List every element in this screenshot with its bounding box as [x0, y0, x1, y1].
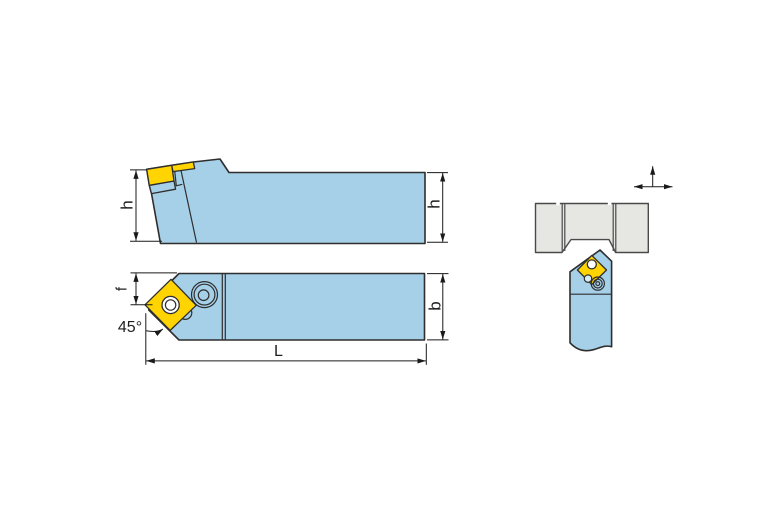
drawing-svg: [0, 0, 767, 523]
label-angle: 45°: [118, 320, 142, 336]
label-width: b: [426, 301, 443, 310]
workpiece: [536, 202, 649, 253]
workpiece-profile: [536, 204, 649, 253]
technical-drawing-canvas: h h f 45° b L: [0, 0, 767, 523]
label-height-left: h: [118, 200, 135, 209]
label-height-right: h: [425, 199, 442, 208]
side-view: [147, 159, 425, 244]
insert-side: [147, 165, 174, 185]
clamp-pin-front: [584, 275, 591, 282]
insert-hole-front: [587, 260, 596, 269]
workpiece-break-gap-left: [556, 202, 560, 206]
feed-direction-icon: [634, 166, 673, 187]
insert-hole-outer: [162, 296, 179, 313]
plan-view: [145, 274, 425, 341]
label-tip-offset: f: [114, 287, 129, 291]
angle-leader: [146, 329, 163, 331]
workpiece-break-gap-right: [608, 202, 612, 206]
holder-body-side: [147, 159, 425, 244]
label-length: L: [274, 344, 283, 360]
front-view: [570, 250, 612, 351]
